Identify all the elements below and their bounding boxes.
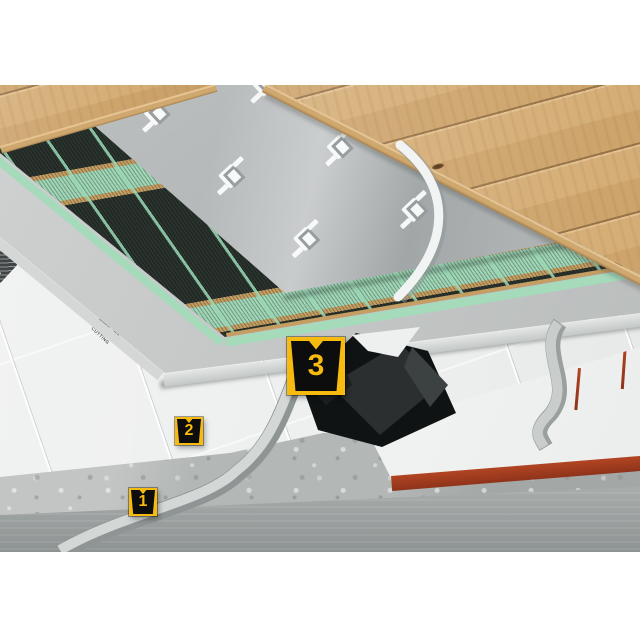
callout-3-number: 3 bbox=[308, 349, 325, 383]
callout-1-number: 1 bbox=[139, 493, 148, 511]
installation-photo: CUTTINGLINESCUTTINGLINESCUTTINGLINESCUTT… bbox=[0, 85, 640, 552]
callout-3-shield: 3 bbox=[291, 341, 341, 391]
figure-canvas: CUTTINGLINESCUTTINGLINESCUTTINGLINESCUTT… bbox=[0, 0, 640, 640]
foil-logo-mark bbox=[212, 157, 252, 196]
callout-2: 2 bbox=[175, 417, 203, 445]
callout-2-shield: 2 bbox=[177, 419, 201, 443]
callout-3: 3 bbox=[287, 337, 345, 395]
foil-logo-mark bbox=[286, 220, 326, 259]
callout-1: 1 bbox=[129, 488, 157, 516]
callout-2-number: 2 bbox=[185, 422, 194, 440]
callout-1-shield: 1 bbox=[131, 490, 155, 514]
foil-logo-mark bbox=[395, 191, 435, 230]
